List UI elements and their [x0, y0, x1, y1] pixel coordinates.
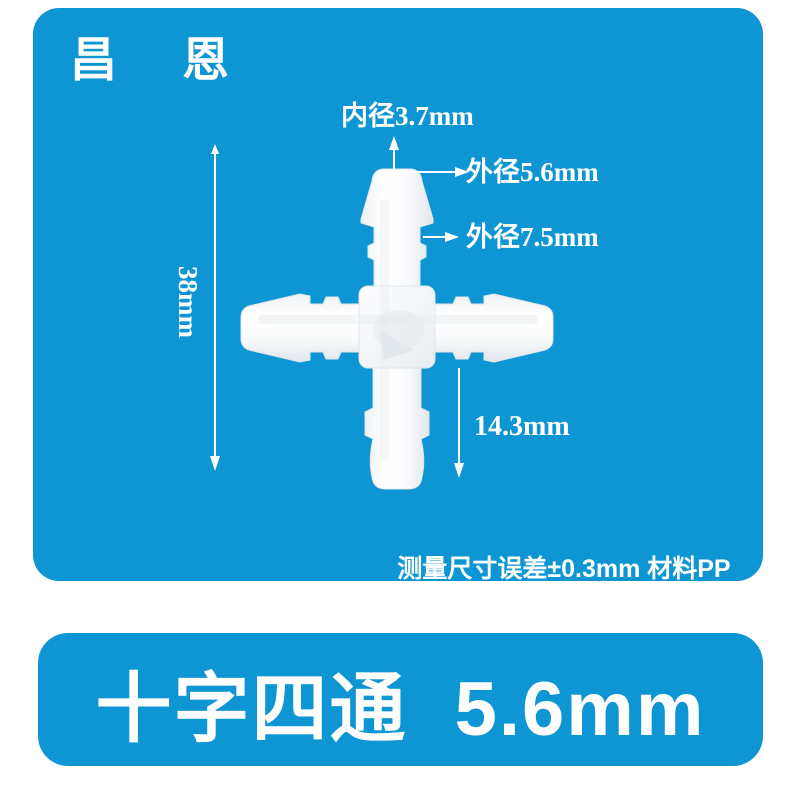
footer-panel: 十字四通 5.6mm: [38, 633, 763, 766]
tolerance-note: 测量尺寸误差±0.3mm 材料PP: [384, 549, 744, 585]
overall-length-label: 38mm: [172, 266, 202, 338]
brand-text: 昌 恩: [70, 34, 255, 86]
inner-diameter-label: 内径3.7mm: [341, 102, 474, 132]
product-title: 十字四通 5.6mm: [96, 643, 706, 757]
page-root: 十字四通 5.6mm: [0, 0, 800, 800]
main-panel: [33, 8, 763, 581]
outer-diameter-large-label: 外径7.5mm: [466, 223, 599, 253]
port-length-label: 14.3mm: [474, 412, 570, 443]
outer-diameter-small-label: 外径5.6mm: [466, 158, 599, 188]
